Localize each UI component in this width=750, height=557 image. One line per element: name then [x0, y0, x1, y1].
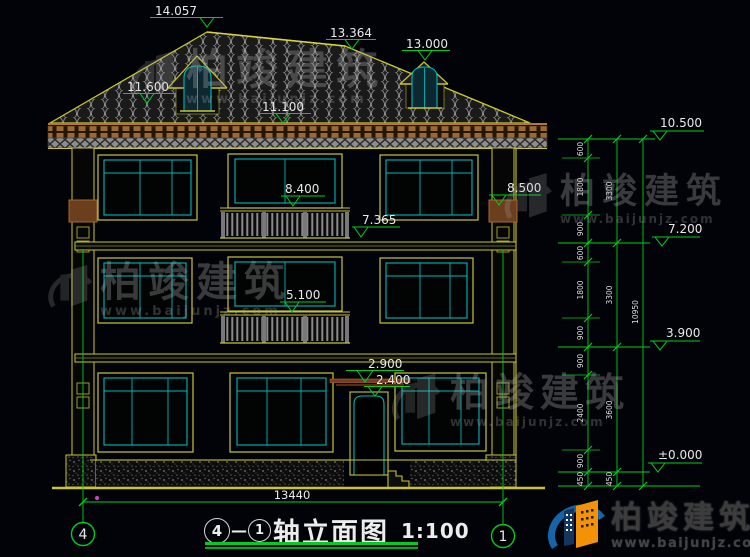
- axis-right-number: 1: [499, 529, 508, 545]
- svg-text:450: 450: [605, 472, 614, 487]
- svg-text:8.400: 8.400: [285, 182, 319, 196]
- svg-text:7.365: 7.365: [362, 213, 396, 227]
- title-scale: 1:100: [401, 519, 470, 543]
- cornice: [48, 124, 547, 149]
- svg-text:1800: 1800: [576, 280, 585, 299]
- svg-text:3600: 3600: [605, 400, 614, 419]
- right-pilaster: [486, 148, 517, 487]
- svg-text:11.600: 11.600: [127, 80, 169, 94]
- svg-text:900: 900: [576, 326, 585, 341]
- svg-text:8.500: 8.500: [507, 181, 541, 195]
- svg-text:2.400: 2.400: [376, 373, 410, 387]
- svg-text:900: 900: [576, 354, 585, 369]
- svg-text:5.100: 5.100: [286, 288, 320, 302]
- footer-logo-brand: 柏竣建筑: [611, 503, 750, 534]
- level-10500: 10.500: [650, 116, 704, 140]
- svg-text:3.900: 3.900: [666, 326, 700, 340]
- svg-text:450: 450: [576, 472, 585, 487]
- axis-bubble-left: 4: [72, 523, 95, 546]
- window-3f-right: [380, 155, 478, 220]
- entry-steps: [388, 471, 409, 487]
- chain-mid-labels: 3300 3300 3600 450: [605, 181, 614, 486]
- svg-text:2400: 2400: [576, 403, 585, 422]
- level-5100: 5.100: [280, 288, 326, 312]
- level-14057: 14.057: [150, 4, 223, 27]
- svg-text:900: 900: [576, 222, 585, 237]
- chain-total-label: 10950: [631, 300, 640, 324]
- level-0000: ±0.000: [648, 448, 702, 472]
- window-2f-left: [98, 258, 192, 323]
- axis-left-number: 4: [79, 527, 88, 543]
- floor-band-2f3f: [75, 242, 516, 250]
- level-7365: 7.365: [352, 213, 400, 237]
- elevation-drawing: 4 1 13440 600 1800 900 600 1800 900 900 …: [0, 0, 750, 557]
- svg-text:2.900: 2.900: [368, 357, 402, 371]
- level-7200: 7.200: [652, 222, 702, 246]
- plinth: [90, 460, 516, 487]
- footer-logo-url: www.baijunjz.com: [611, 537, 750, 550]
- svg-text:3300: 3300: [605, 181, 614, 200]
- svg-text:1800: 1800: [576, 177, 585, 196]
- title-axis-to-bubble: 1: [248, 519, 271, 542]
- window-2f-right: [380, 258, 473, 323]
- axis-bubble-right: 1: [492, 525, 515, 548]
- window-1f-left: [98, 373, 193, 452]
- window-1f-middle: [230, 373, 333, 452]
- level-13000: 13.000: [402, 37, 450, 60]
- svg-text:10.500: 10.500: [660, 116, 702, 130]
- title-underline-2: [205, 547, 418, 549]
- svg-text:3300: 3300: [605, 285, 614, 304]
- level-3900: 3.900: [650, 326, 700, 350]
- svg-text:14.057: 14.057: [155, 4, 197, 18]
- balcony-2f: [220, 257, 350, 343]
- title-separator: —: [231, 521, 247, 540]
- window-3f-left: [98, 155, 197, 220]
- bottom-dimension: 13440: [79, 488, 507, 506]
- right-dormer: [400, 62, 448, 108]
- footer-logo-icon: [543, 497, 607, 555]
- title-axis-from-bubble: 4: [204, 518, 230, 544]
- title-underline: [205, 542, 418, 545]
- left-pilaster: [66, 148, 97, 487]
- chain-inner-labels: 600 1800 900 600 1800 900 900 2400 900 4…: [576, 142, 585, 487]
- svg-text:7.200: 7.200: [668, 222, 702, 236]
- bottom-dimension-value: 13440: [274, 488, 311, 502]
- floor-band-1f2f: [75, 354, 516, 362]
- svg-text:600: 600: [576, 142, 585, 157]
- svg-text:13.364: 13.364: [330, 26, 372, 40]
- entry-door: [330, 379, 410, 475]
- right-dimension-chain: 600 1800 900 600 1800 900 900 2400 900 4…: [558, 135, 700, 490]
- svg-text:900: 900: [576, 454, 585, 469]
- cad-elevation-screenshot: 4 1 13440 600 1800 900 600 1800 900 900 …: [0, 0, 750, 557]
- svg-text:13.000: 13.000: [406, 37, 448, 51]
- svg-text:11.100: 11.100: [262, 100, 304, 114]
- footer-logo: 柏竣建筑 www.baijunjz.com: [543, 497, 750, 555]
- svg-text:±0.000: ±0.000: [658, 448, 702, 462]
- svg-text:600: 600: [576, 246, 585, 261]
